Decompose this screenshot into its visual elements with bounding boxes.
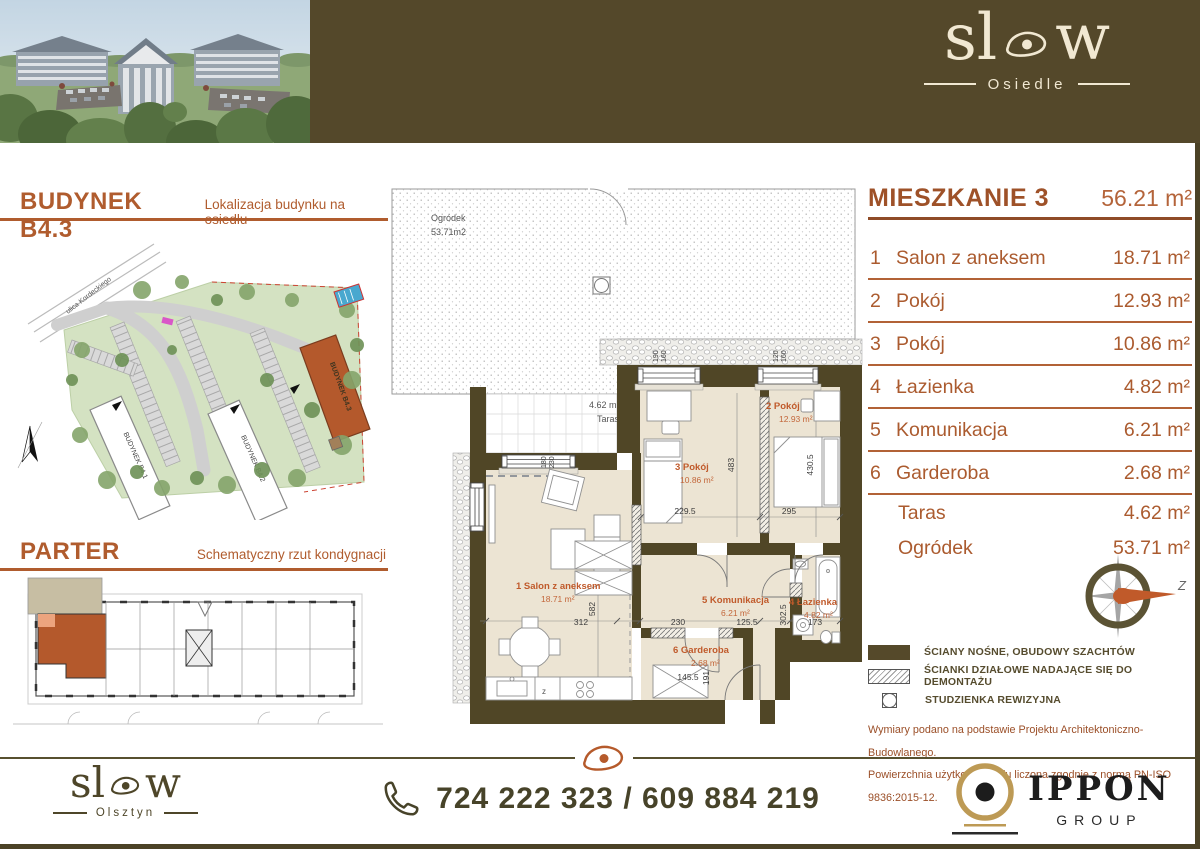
- footer-eye-icon: [107, 773, 143, 798]
- room-number: 3: [870, 333, 886, 356]
- label-room3: 3 Pokój: [675, 462, 709, 473]
- room-area: 2.68 m²: [1124, 462, 1190, 485]
- legend-row-chamber: STUDZIENKA REWIZYJNA: [868, 692, 1192, 708]
- chair-room3: [662, 421, 679, 434]
- area-salon: 18.71 m²: [541, 594, 575, 604]
- room-row-lazienka: 4 Łazienka 4.82 m²: [868, 366, 1192, 409]
- dim-window1-b: 160: [661, 350, 668, 362]
- dim-room3-width: 229.5: [674, 506, 696, 516]
- room-area: 18.71 m²: [1113, 247, 1190, 270]
- gravel-strip-left: [453, 453, 470, 703]
- dim-hall-width1: 230: [671, 617, 685, 627]
- schematic-garden-patch: [28, 578, 102, 614]
- dim-window2-a: 120: [773, 350, 780, 362]
- room-name: Łazienka: [896, 376, 974, 399]
- footer-logo-subtitle: Olsztyn: [96, 807, 155, 819]
- logo-dash-right: [1078, 83, 1130, 85]
- phone-block: 724 222 323 / 609 884 219: [340, 778, 860, 820]
- room-name: Komunikacja: [896, 419, 1008, 442]
- dim-wardrobe-height: 191: [701, 671, 711, 685]
- room-number: 5: [870, 419, 886, 442]
- phone-numbers: 724 222 323 / 609 884 219: [436, 782, 820, 816]
- footer-logo-letters-sl: sl: [70, 764, 105, 802]
- terrace-label: Taras: [597, 414, 620, 424]
- schematic-door-arcs: [68, 712, 330, 724]
- apartment-header: MIESZKANIE 3 56.21 m²: [868, 184, 1192, 213]
- garden-area-value: 53.71m2: [431, 227, 466, 237]
- bathtub: [816, 557, 840, 617]
- dim-bath-width: 173: [808, 617, 822, 627]
- dim-window1-a: 190: [653, 350, 660, 362]
- dim-room2-height: 430.5: [805, 454, 815, 476]
- legend-row-walls: ŚCIANY NOŚNE, OBUDOWY SZACHTÓW: [868, 644, 1192, 660]
- floor-header-rule: [0, 568, 388, 571]
- slow-eye-icon: [1000, 26, 1052, 62]
- slow-logo-word: sl w: [872, 10, 1182, 68]
- area-room3: 10.86 m²: [680, 475, 714, 485]
- desk-room3: [647, 391, 691, 421]
- room-number: 1: [870, 247, 886, 270]
- page-right-border: [1195, 143, 1200, 849]
- room-area: 6.21 m²: [1124, 419, 1190, 442]
- ippon-circle-icon: [952, 762, 1018, 840]
- schematic-terrace-patch: [38, 614, 55, 627]
- tv-cabinet: [489, 485, 495, 543]
- north-arrow: [18, 422, 42, 468]
- room-area: 10.86 m²: [1113, 333, 1190, 356]
- footer-logo-subtitle-row: Olsztyn: [28, 807, 223, 819]
- legend-row-partitions: ŚCIANKI DZIAŁOWE NADAJĄCE SIĘ DO DEMONTA…: [868, 668, 1192, 684]
- floor-subtitle: Schematyczny rzut kondygnacji: [197, 547, 386, 562]
- inspection-chamber: [593, 277, 610, 294]
- divider-eye-icon: [575, 738, 633, 778]
- compass-west-label: Z: [1177, 578, 1187, 593]
- kitchen: [486, 677, 632, 700]
- gravel-strip-top: [600, 339, 862, 365]
- dim-room3-height: 483: [726, 458, 736, 472]
- slow-osiedle-logo: sl w Osiedle: [872, 10, 1182, 93]
- room-name: Pokój: [896, 333, 945, 356]
- dim-wardrobe-width: 145.5: [677, 672, 699, 682]
- ippon-name: IPPON: [1028, 772, 1171, 806]
- room-number: 6: [870, 462, 886, 485]
- schematic-core: [186, 630, 212, 666]
- window-room2: [755, 367, 821, 390]
- plan-legend: ŚCIANY NOŚNE, OBUDOWY SZACHTÓW ŚCIANKI D…: [868, 644, 1192, 716]
- legend-label: ŚCIANKI DZIAŁOWE NADAJĄCE SIĘ DO DEMONTA…: [924, 664, 1192, 688]
- slow-logo-subtitle-row: Osiedle: [872, 76, 1182, 93]
- extra-name: Ogródek: [898, 537, 973, 560]
- toilet: [821, 631, 841, 644]
- room-name: Salon z aneksem: [896, 247, 1046, 270]
- footer-logo-word: sl w: [28, 764, 223, 802]
- phone-icon: [380, 778, 422, 820]
- terrace-area-value: 4.62 m2: [589, 400, 622, 410]
- inspection-chamber-swatch: [882, 693, 897, 708]
- slow-olsztyn-logo: sl w Olsztyn: [28, 764, 223, 819]
- apartment-total-area: 56.21 m²: [1101, 185, 1192, 212]
- footer-logo-letter-w: w: [145, 764, 181, 802]
- label-bathroom: 4 Łazienka: [789, 597, 838, 608]
- floor-section-header: PARTER Schematyczny rzut kondygnacji: [20, 538, 386, 566]
- window-salon-left: [470, 483, 484, 531]
- garden-label: Ogródek: [431, 213, 466, 223]
- room-row-garderoba: 6 Garderoba 2.68 m²: [868, 452, 1192, 495]
- top-banner: sl w Osiedle: [0, 0, 1200, 143]
- room-area: 12.93 m²: [1113, 290, 1190, 313]
- hatched-wall-swatch: [868, 669, 910, 684]
- dim-window3-a: 180: [541, 456, 548, 468]
- footer-dash-left: [53, 812, 87, 814]
- kitchen-mark: z: [542, 687, 546, 696]
- dim-salon-height: 582: [587, 602, 597, 616]
- room-row-pokoj3: 3 Pokój 10.86 m²: [868, 323, 1192, 366]
- flyer-page: sl w Osiedle BUDYNEK B4.3 Lokalizacja bu…: [0, 0, 1200, 849]
- extra-name: Taras: [898, 502, 946, 525]
- chair-room2: [801, 399, 813, 412]
- room-row-pokoj2: 2 Pokój 12.93 m²: [868, 280, 1192, 323]
- area-wardrobe-room: 2.68 m²: [691, 658, 720, 668]
- label-wardrobe-room: 6 Garderoba: [673, 645, 730, 656]
- logo-subtitle: Osiedle: [988, 76, 1067, 93]
- ippon-subtitle: GROUP: [1028, 812, 1171, 828]
- desk-room2: [814, 391, 840, 421]
- floor-title: PARTER: [20, 538, 120, 566]
- room-row-komunikacja: 5 Komunikacja 6.21 m²: [868, 409, 1192, 452]
- window-terrace: [499, 455, 578, 474]
- building-subtitle: Lokalizacja budynku na osiedlu: [205, 197, 386, 227]
- legend-label: ŚCIANY NOŚNE, OBUDOWY SZACHTÓW: [924, 646, 1135, 658]
- building-header-rule: [0, 218, 388, 221]
- room-area: 4.82 m²: [1124, 376, 1190, 399]
- terrace-area: 4.62 m2 Taras: [486, 394, 622, 453]
- label-room2: 2 Pokój: [766, 401, 800, 412]
- ippon-group-logo: IPPON GROUP: [952, 762, 1190, 840]
- logo-letter-w: w: [1055, 10, 1110, 68]
- room-name: Garderoba: [896, 462, 989, 485]
- room-number: 2: [870, 290, 886, 313]
- window-room3: [635, 367, 703, 390]
- compass: Z: [1078, 548, 1188, 643]
- floor-plan: Ogródek 53.71m2 4.62 m2 Taras: [385, 185, 865, 733]
- legend-label: STUDZIENKA REWIZYJNA: [925, 694, 1061, 706]
- logo-dash-left: [924, 83, 976, 85]
- room-name: Pokój: [896, 290, 945, 313]
- extra-area: 4.62 m²: [1124, 502, 1190, 525]
- room-number: 4: [870, 376, 886, 399]
- label-salon: 1 Salon z aneksem: [516, 581, 600, 592]
- apartment-title: MIESZKANIE 3: [868, 184, 1049, 213]
- footer-dash-right: [164, 812, 198, 814]
- dim-salon-width: 312: [574, 617, 588, 627]
- solid-wall-swatch: [868, 645, 910, 660]
- dim-window2-b: 160: [781, 350, 788, 362]
- floor-schematic: [8, 572, 388, 740]
- dim-window3-b: 230: [549, 456, 556, 468]
- label-hall: 5 Komunikacja: [702, 595, 770, 606]
- page-bottom-border: [0, 844, 1200, 849]
- dim-room2-width: 295: [782, 506, 796, 516]
- room-list: 1 Salon z aneksem 18.71 m² 2 Pokój 12.93…: [868, 237, 1192, 565]
- apartment-header-rule: [868, 217, 1192, 220]
- site-map: ulica Kordeckiego BUDYNEK B4.1 BUDYNEK B…: [12, 230, 387, 520]
- ippon-text-block: IPPON GROUP: [1028, 762, 1171, 828]
- dim-hall-width2: 125.5: [736, 617, 758, 627]
- extra-row-taras: Taras 4.62 m²: [868, 495, 1192, 530]
- dim-bath-height: 302.5: [778, 604, 788, 626]
- area-room2: 12.93 m²: [779, 414, 813, 424]
- logo-letters-sl: sl: [944, 10, 997, 68]
- room-row-salon: 1 Salon z aneksem 18.71 m²: [868, 237, 1192, 280]
- aerial-render-photo: [0, 0, 310, 143]
